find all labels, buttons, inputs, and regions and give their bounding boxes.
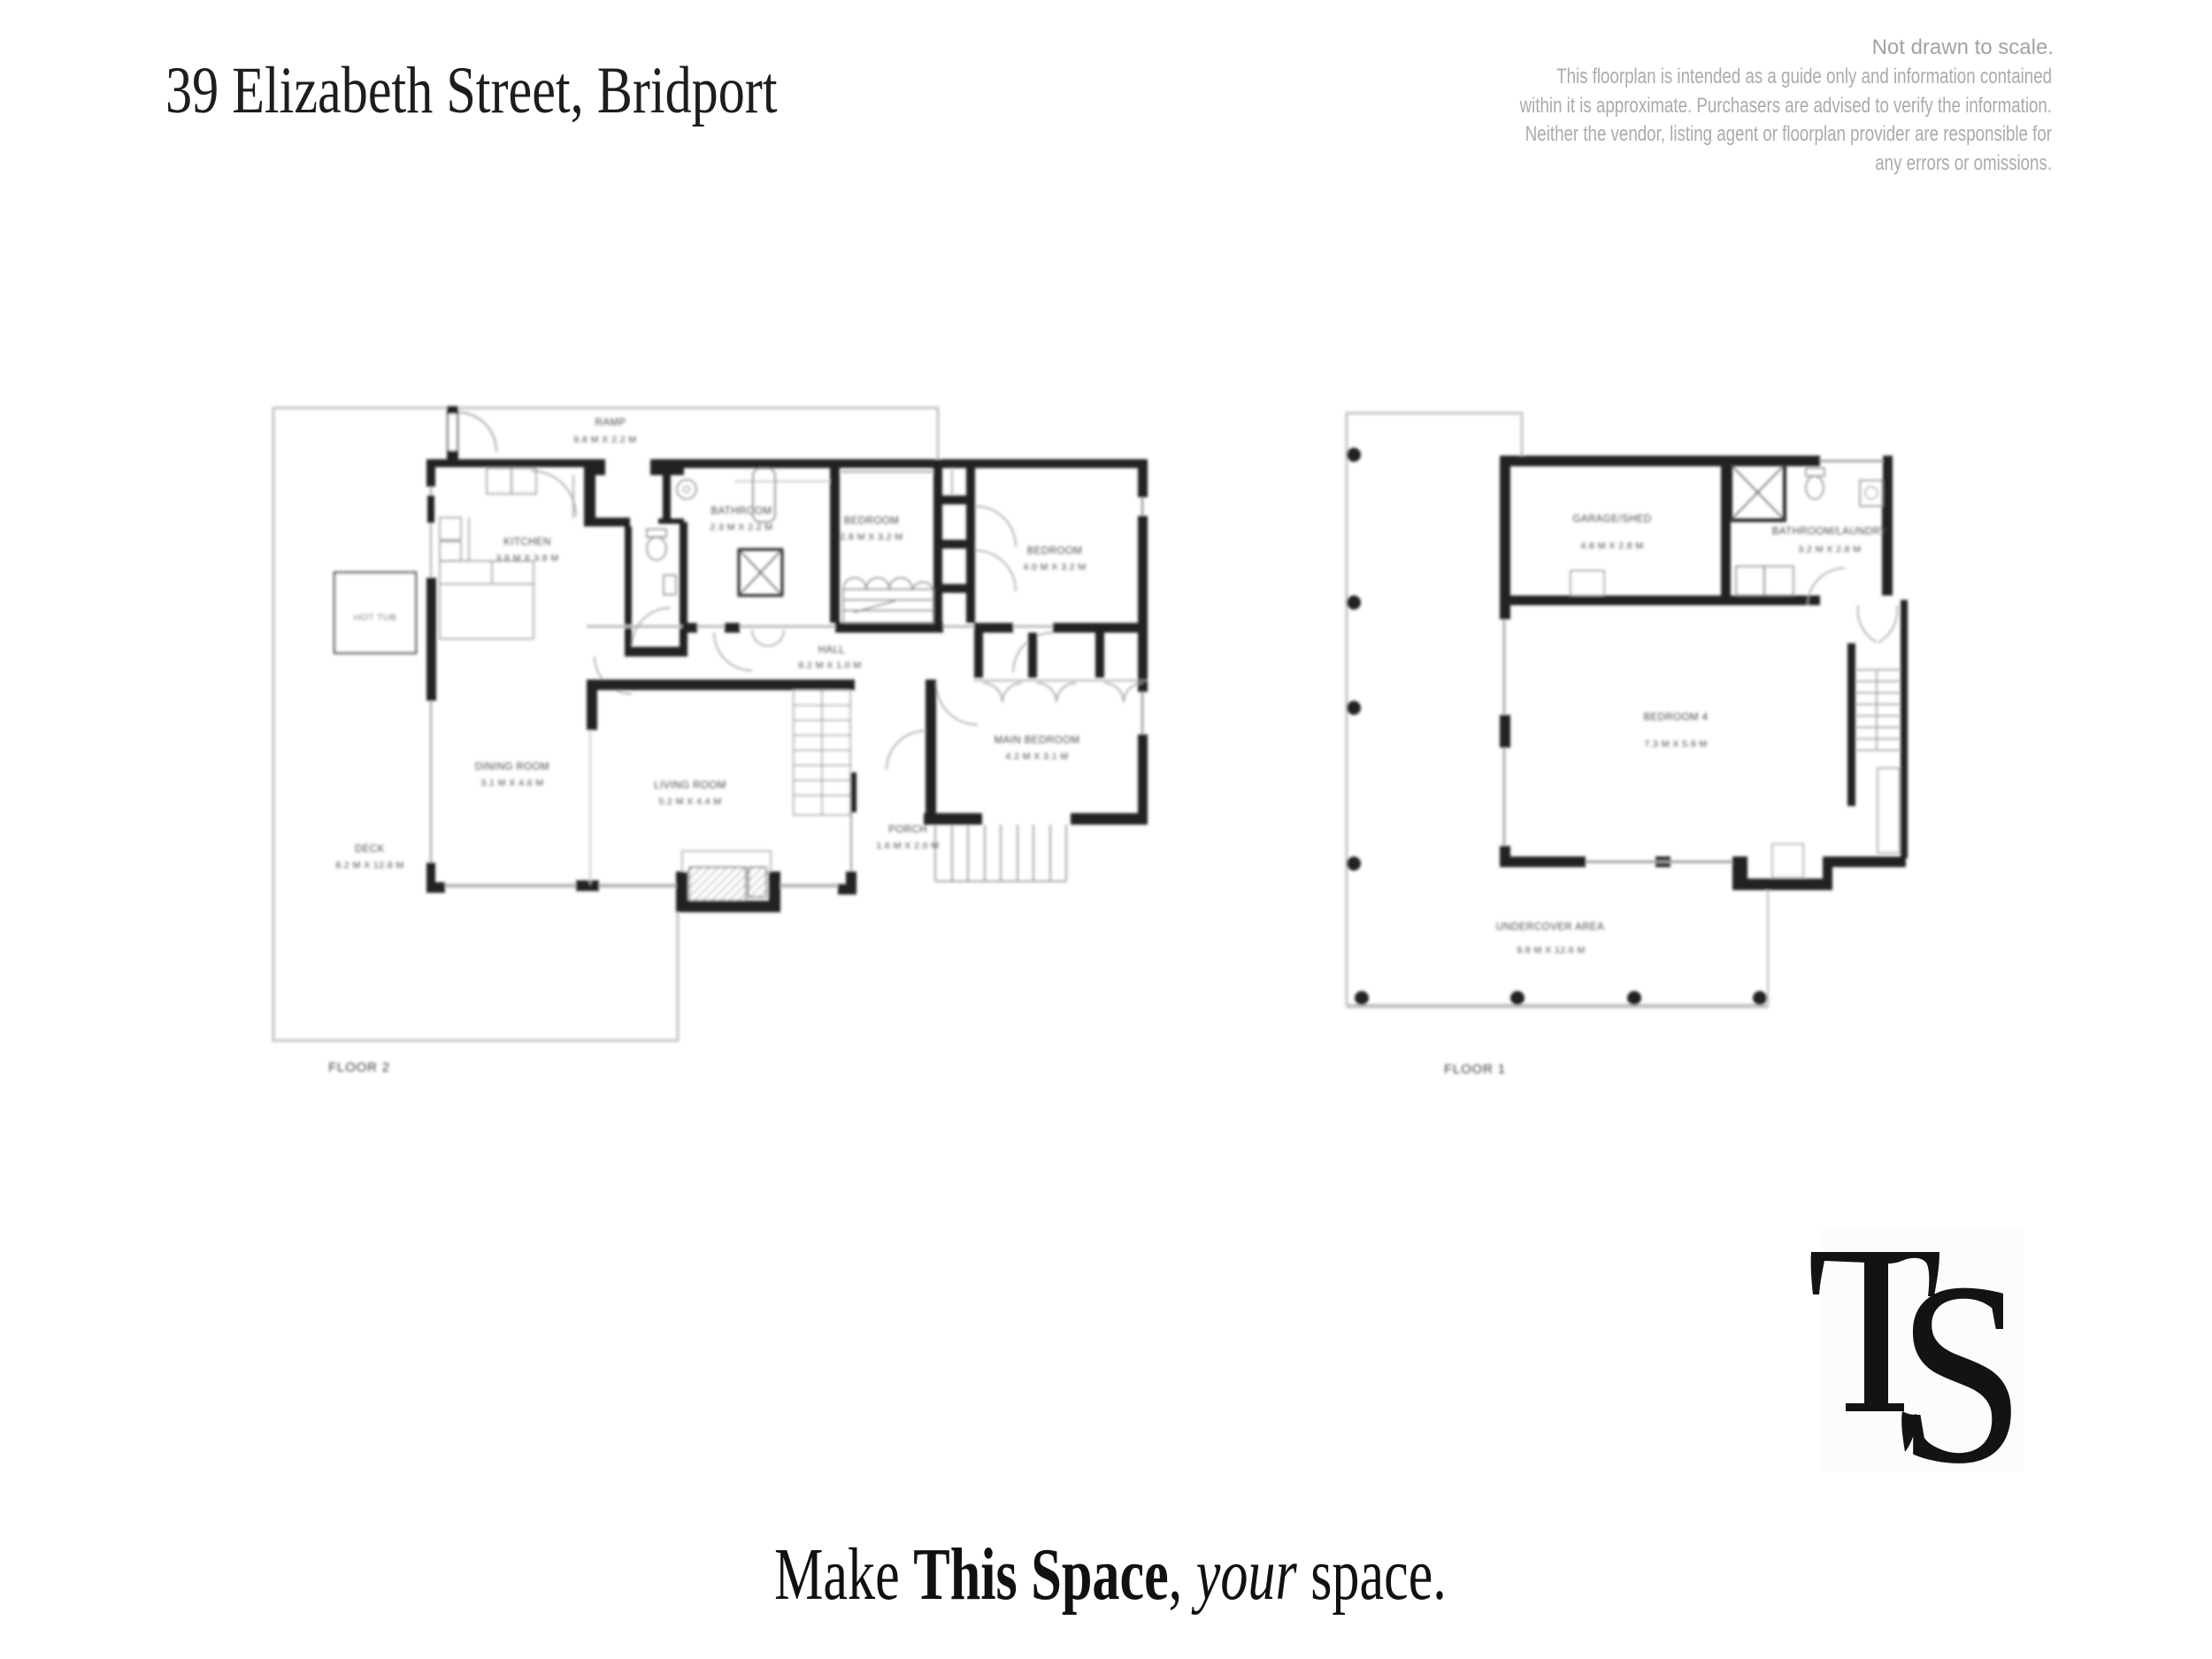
svg-text:BEDROOM: BEDROOM	[844, 516, 900, 526]
svg-text:8.2 M X 12.8 M: 8.2 M X 12.8 M	[335, 860, 404, 871]
svg-text:UNDERCOVER AREA: UNDERCOVER AREA	[1496, 922, 1604, 933]
svg-text:GARAGE/SHED: GARAGE/SHED	[1572, 514, 1651, 525]
svg-text:HALL: HALL	[818, 645, 846, 656]
svg-text:PORCH: PORCH	[888, 825, 927, 835]
svg-text:DINING ROOM: DINING ROOM	[475, 762, 549, 772]
svg-text:4.2 M X 3.1 M: 4.2 M X 3.1 M	[1005, 751, 1068, 762]
svg-text:BATHROOM/LAUNDRY: BATHROOM/LAUNDRY	[1772, 526, 1888, 537]
svg-text:S: S	[1898, 1229, 2025, 1495]
svg-text:MAIN BEDROOM: MAIN BEDROOM	[995, 735, 1080, 746]
svg-text:5.2 M X 4.4 M: 5.2 M X 4.4 M	[658, 796, 721, 807]
svg-text:FLOOR 2: FLOOR 2	[328, 1060, 390, 1075]
svg-text:HOT TUB: HOT TUB	[354, 612, 397, 623]
svg-text:1.6 M X 2.0 M: 1.6 M X 2.0 M	[876, 841, 939, 851]
svg-text:BATHROOM: BATHROOM	[710, 506, 772, 517]
svg-text:LIVING ROOM: LIVING ROOM	[654, 780, 726, 791]
svg-text:2.3 M X 2.2 M: 2.3 M X 2.2 M	[710, 522, 772, 533]
svg-text:9.8 M X 2.2 M: 9.8 M X 2.2 M	[573, 434, 636, 445]
svg-text:RAMP: RAMP	[595, 418, 626, 428]
svg-text:8.2 M X 1.0 M: 8.2 M X 1.0 M	[798, 660, 861, 671]
svg-text:3.1 M X 4.6 M: 3.1 M X 4.6 M	[480, 778, 543, 788]
svg-text:9.8 M X 12.6 M: 9.8 M X 12.6 M	[1517, 945, 1586, 956]
svg-text:4.0 M X 3.2 M: 4.0 M X 3.2 M	[1023, 562, 1086, 572]
svg-text:3.8 M X 3.8 M: 3.8 M X 3.8 M	[495, 553, 558, 564]
svg-text:BEDROOM 4: BEDROOM 4	[1643, 712, 1708, 723]
svg-text:BEDROOM: BEDROOM	[1027, 546, 1083, 557]
svg-text:KITCHEN: KITCHEN	[503, 537, 551, 548]
svg-text:FLOOR 1: FLOOR 1	[1444, 1062, 1506, 1077]
svg-text:4.8 M X 2.8 M: 4.8 M X 2.8 M	[1580, 541, 1643, 551]
svg-text:2.8 M X 3.2 M: 2.8 M X 3.2 M	[840, 532, 902, 542]
svg-text:DECK: DECK	[355, 844, 385, 855]
svg-text:7.3 M X 5.9 M: 7.3 M X 5.9 M	[1644, 739, 1707, 749]
svg-text:3.2 M X 2.8 M: 3.2 M X 2.8 M	[1798, 544, 1861, 555]
